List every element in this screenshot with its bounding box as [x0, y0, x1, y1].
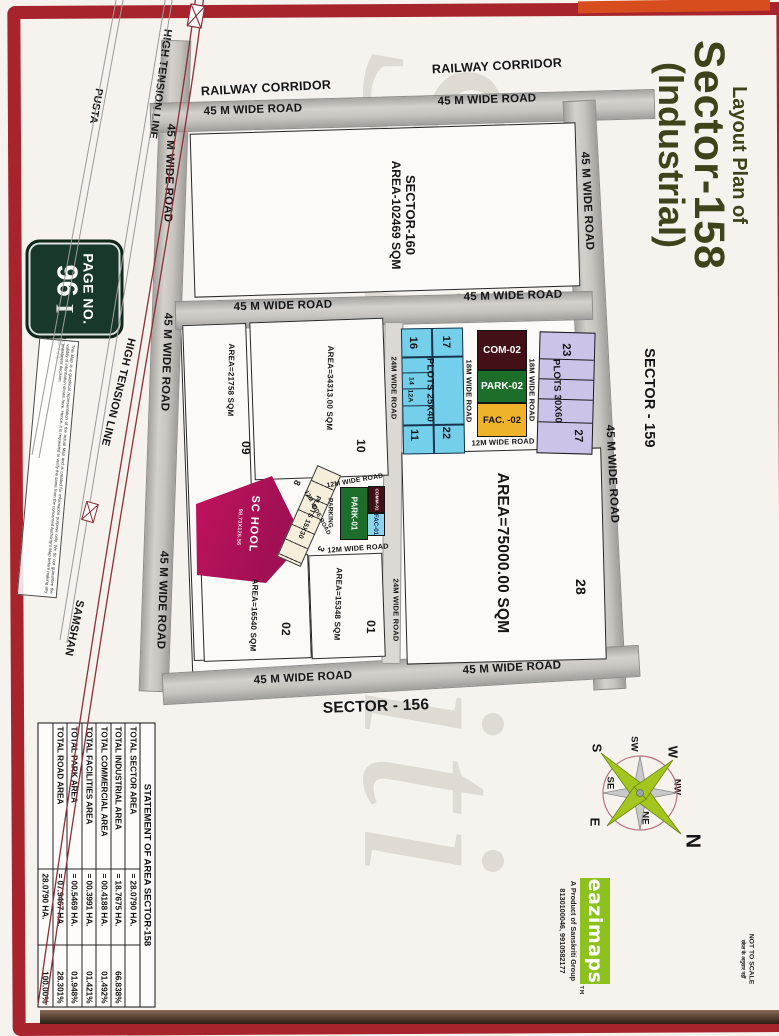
parking-label: PARKING: [327, 498, 334, 528]
plot-28-area: AREA=75000.00 SQM: [493, 473, 511, 634]
compass-ne-label: NE: [640, 811, 651, 825]
page-number-value: 96 I: [52, 265, 81, 314]
map-title-line3: (Industrial): [654, 35, 688, 275]
area-statement-title: STATEMENT OF AREA SECTOR-158: [140, 724, 155, 1007]
row-percent: [126, 946, 140, 1007]
plot-com-01: COMM-01: [368, 486, 385, 513]
plot-10: [249, 318, 388, 481]
road-18m-label: 18M WIDE ROAD: [465, 359, 474, 422]
com-02-label: COM-02: [483, 345, 521, 356]
fac-02-label: FAC. -02: [483, 415, 521, 426]
plot-22-number: 22: [440, 427, 452, 440]
not-to-scale-note: NOT TO SCALE स्केल के अनुसार नहीं: [737, 932, 755, 987]
sector-160-label: SECTOR-160 AREA-102469 SQM: [382, 150, 418, 280]
plot-fac-02: FAC. -02: [477, 403, 527, 437]
row-percent: 01.492%: [97, 946, 111, 1007]
row-value: = 28.0790 HA.: [126, 870, 140, 946]
park-02-label: PARK-02: [481, 381, 523, 392]
compass-w-label: W: [666, 746, 681, 758]
trademark-mark: TM: [578, 986, 584, 995]
table-row: TOTAL SECTOR AREA = 28.0790 HA.: [125, 724, 140, 1007]
road-45m-label: 45 M WIDE ROAD: [464, 289, 563, 304]
row-percent: 28.301%: [53, 946, 67, 1007]
plot-16-number: 16: [407, 337, 419, 350]
page-number-badge: PAGE NO. 96 I: [26, 240, 124, 339]
strip-grid-line: [539, 398, 593, 400]
table-row-total: 28.0790 HA. 100.00%: [38, 724, 52, 1007]
plot-27-number: 27: [572, 429, 584, 443]
eazimaps-branding: eazimaps TM A Product of Sanskriti Group…: [556, 871, 610, 991]
row-label: [38, 724, 52, 870]
row-value: = 00.4188 HA.: [97, 870, 111, 946]
compass-se-label: SE: [605, 776, 616, 789]
branding-phone: 8130100046, 9910582177: [558, 871, 567, 991]
row-value: = 18.7675 HA.: [111, 870, 125, 946]
sector-156-label: SECTOR - 156: [323, 696, 430, 718]
table-row: TOTAL FACILITIES AREA = 00.3991 HA. 01.4…: [81, 724, 96, 1007]
page-number: 96: [52, 265, 81, 297]
plot-09-number: 09: [239, 441, 253, 455]
photo-bottom-edge: [40, 1010, 779, 1024]
plot-11-number: 11: [408, 429, 420, 441]
not-to-scale-en: NOT TO SCALE: [748, 932, 755, 987]
compass-e-label: E: [588, 818, 603, 827]
road-24m-label: 24M WIDE ROAD: [390, 356, 399, 419]
row-percent: 01.421%: [82, 946, 96, 1007]
row-percent: 01.948%: [68, 946, 82, 1007]
table-row: TOTAL PARK AREA = 00.5469 HA. 01.948%: [67, 724, 82, 1007]
row-percent: 66.838%: [111, 946, 125, 1007]
table-row: TOTAL INDUSTRIAL AREA = 18.7675 HA. 66.8…: [110, 724, 125, 1007]
plot-28-number: 28: [573, 579, 589, 595]
park-01-label: PARK-01: [350, 497, 359, 531]
map-title-line2: Sector-158: [688, 35, 729, 275]
page-number-suffix: I: [52, 304, 77, 314]
row-value: = 00.3991 HA.: [82, 870, 96, 946]
row-value: 28.0790 HA.: [38, 870, 52, 946]
compass-s-label: S: [590, 744, 605, 753]
compass-sw-label: SW: [629, 736, 640, 752]
plot-12a-number: 12A: [407, 389, 414, 402]
table-row: TOTAL COMMERCIAL AREA = 00.4188 HA. 01.4…: [96, 724, 111, 1007]
row-label: TOTAL SECTOR AREA: [126, 724, 140, 870]
plot-23-number: 23: [560, 343, 572, 357]
plot-park-01: PARK-01: [340, 487, 368, 540]
table-row: TOTAL ROAD AREA = 07.9467 HA. 28.301%: [52, 724, 67, 1007]
road-45m-label: 45 M WIDE ROAD: [234, 299, 333, 314]
row-percent: 100.00%: [38, 946, 52, 1007]
plot-01: [308, 553, 386, 660]
plot-10-area: AREA=34313.00 SQM: [325, 346, 335, 431]
row-label: TOTAL FACILITIES AREA: [82, 724, 96, 870]
sector-160-area: AREA-102469 SQM: [389, 150, 403, 280]
row-label: TOTAL INDUSTRIAL AREA: [111, 724, 125, 870]
plots-30x60-label: PLOTS 30X60: [550, 359, 563, 423]
branding-tagline: A Product of Sanskriti Group: [569, 871, 578, 991]
road-24m-label: 24M WIDE ROAD: [392, 578, 401, 641]
page-number-label: PAGE NO.: [81, 253, 97, 324]
row-label: TOTAL PARK AREA: [68, 724, 82, 870]
fac-01-label: FAC-01: [373, 514, 380, 535]
plot-17-number: 17: [440, 336, 452, 349]
eazimaps-logo-text: eazimaps: [584, 879, 606, 984]
com-01-label: COMM-01: [374, 488, 379, 510]
plot-02-number: 02: [279, 622, 293, 636]
row-label: TOTAL COMMERCIAL AREA: [97, 724, 111, 870]
compass-n-label: N: [681, 834, 704, 849]
sector-159-label: SECTOR - 159: [641, 348, 657, 448]
compass-nw-label: NW: [672, 779, 683, 795]
eazimaps-logo: eazimaps TM: [580, 878, 610, 984]
plots-25x40-label: PLOTS 25X40: [425, 358, 436, 422]
plot-01-number: 01: [364, 620, 378, 634]
plot-09-area: AREA=21758 SQM: [226, 344, 236, 417]
area-statement-table: STATEMENT OF AREA SECTOR-158 TOTAL SECTO…: [38, 723, 156, 1008]
scanned-layout-plan-page: { "document": { "title": { "line1": "Lay…: [0, 0, 779, 1024]
plot-14-number: 14: [408, 377, 415, 385]
not-to-scale-hi: स्केल के अनुसार नहीं: [740, 932, 748, 987]
plot-10-number: 10: [354, 439, 368, 453]
row-value: = 07.9467 HA.: [53, 870, 67, 946]
plot-fac-01: FAC-01: [367, 513, 385, 536]
map-title: Layout Plan of Sector-158 (Industrial): [630, 35, 748, 275]
road-18m-label: 18M WIDE ROAD: [528, 358, 537, 421]
row-value: = 00.5469 HA.: [68, 870, 82, 946]
row-label: TOTAL ROAD AREA: [53, 724, 67, 870]
strip-grid-line: [539, 378, 593, 380]
plot-com-02: COM-02: [477, 330, 527, 370]
plot-park-02: PARK-02: [477, 370, 527, 403]
strip-grid-line: [540, 358, 594, 360]
sector-160-name: SECTOR-160: [403, 150, 418, 280]
strip-grid-line: [538, 421, 592, 423]
